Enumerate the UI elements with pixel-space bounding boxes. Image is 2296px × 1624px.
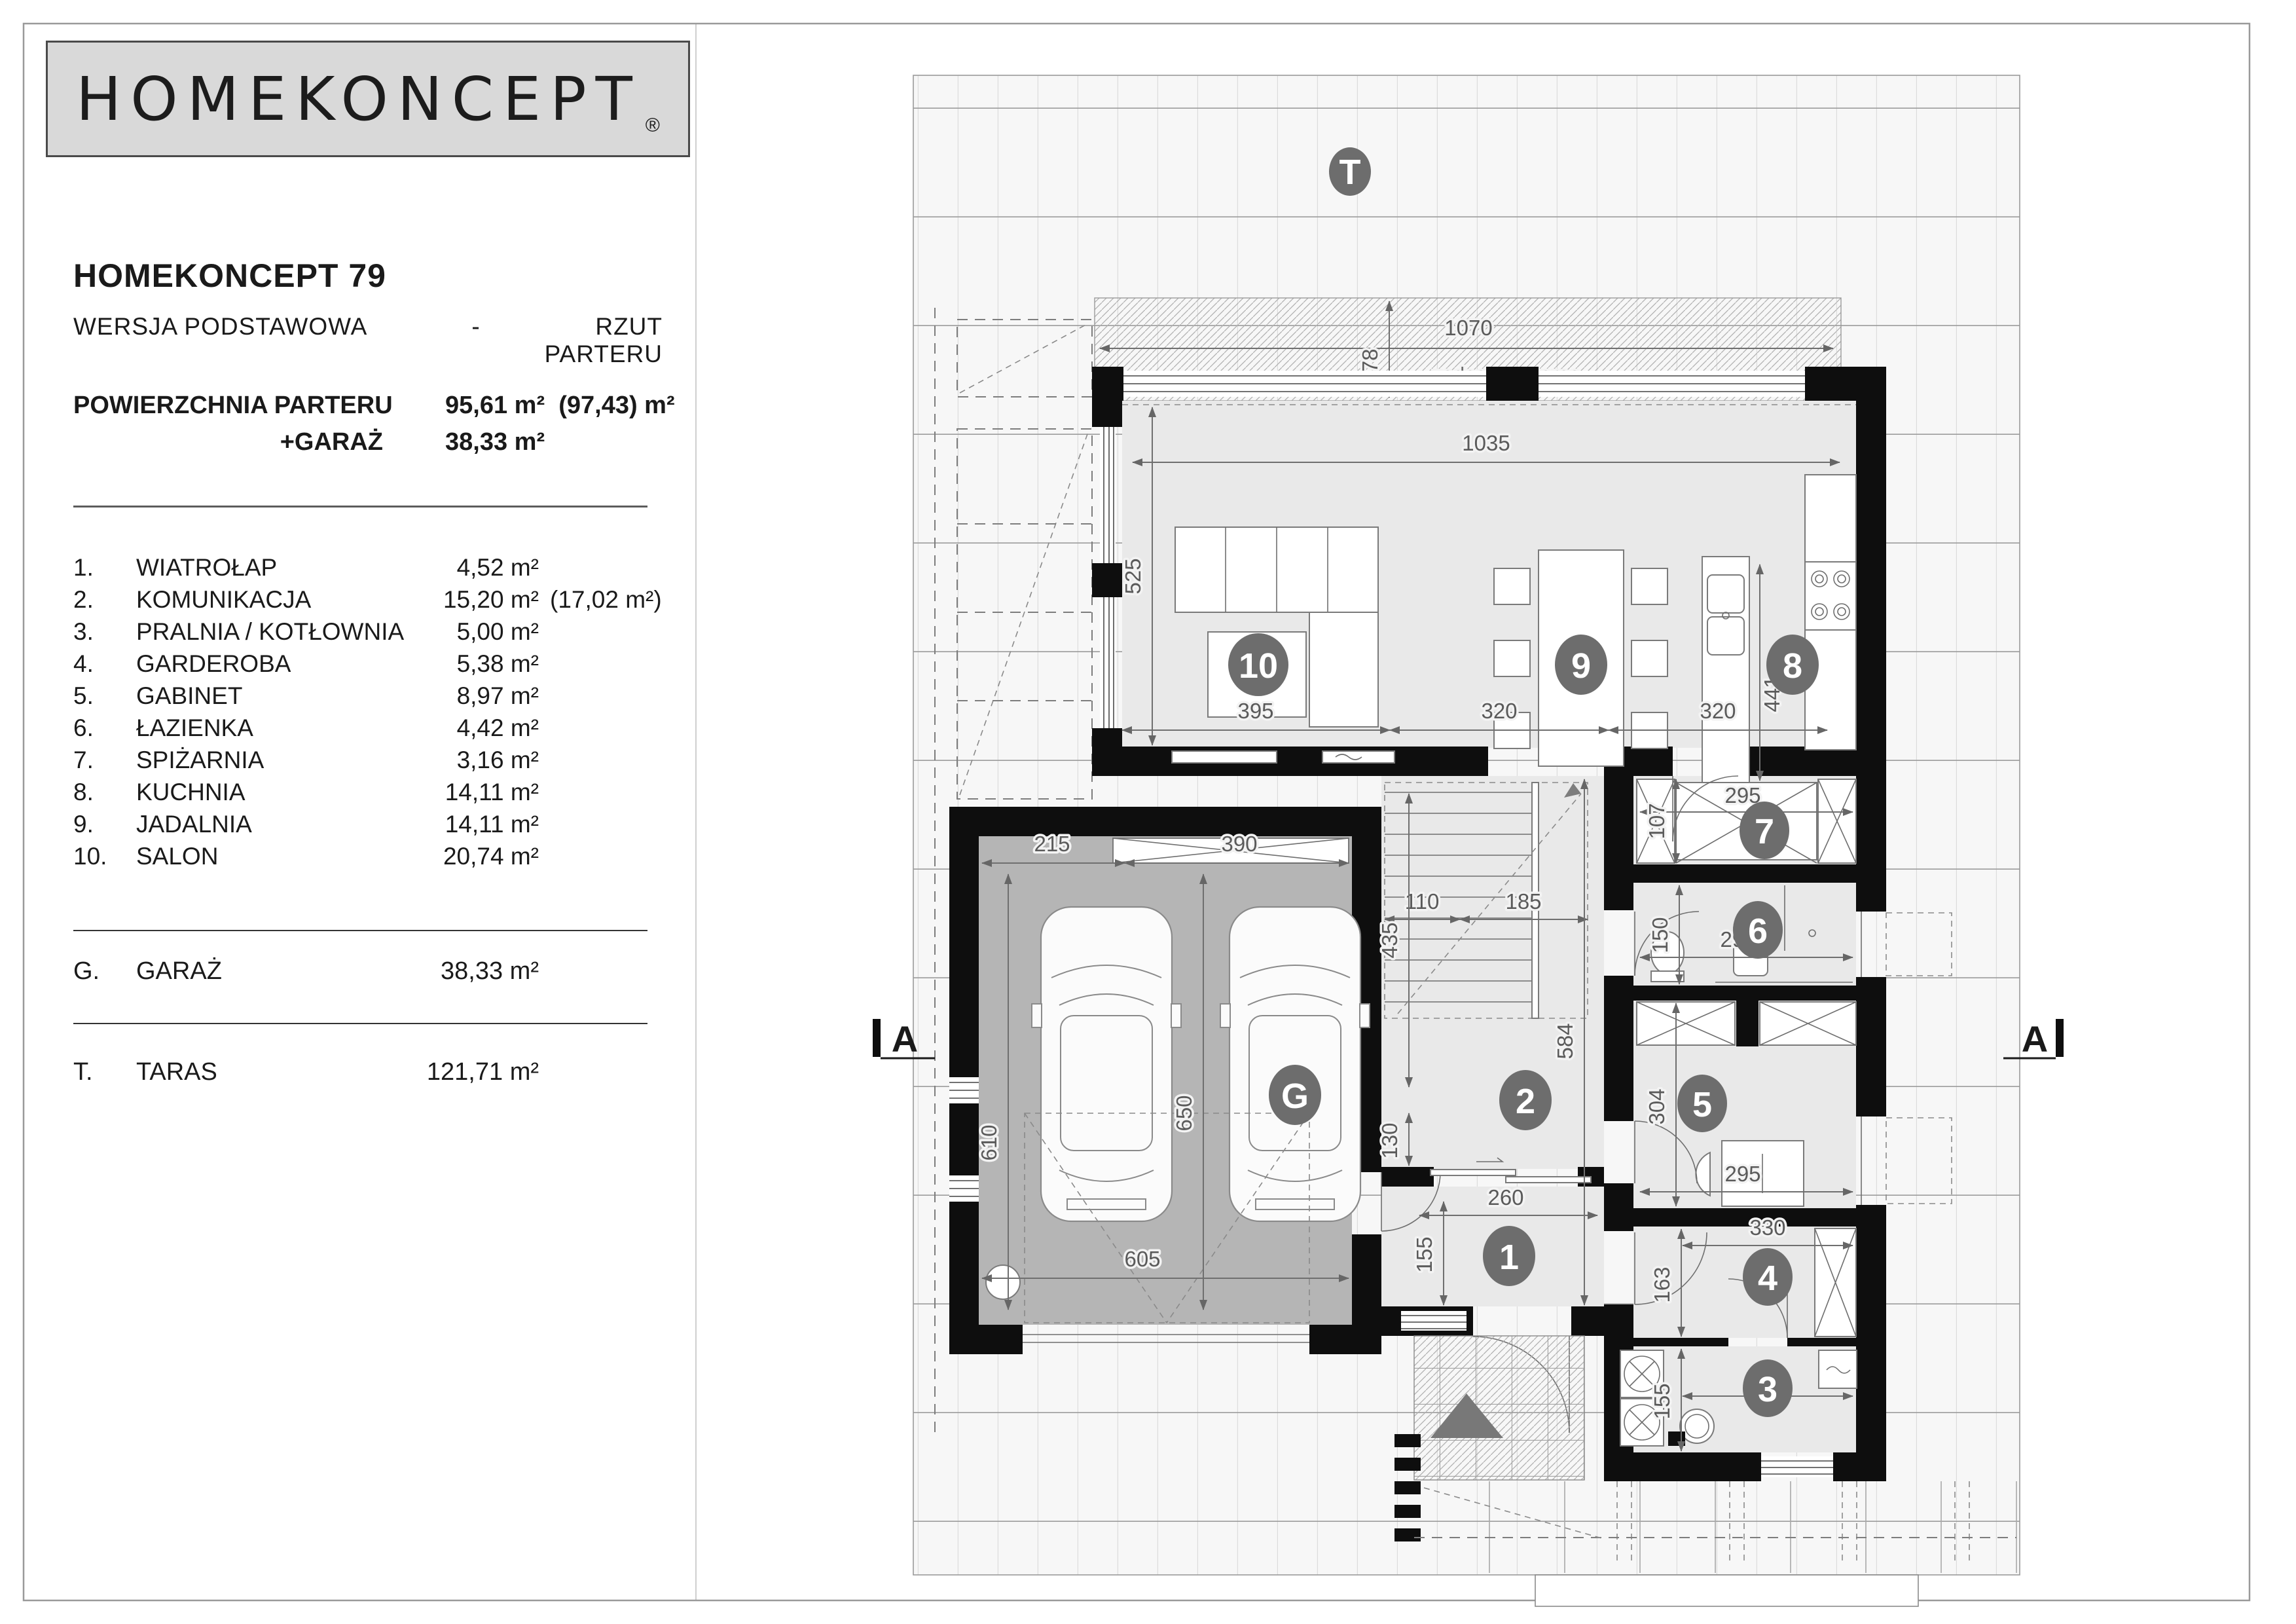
svg-text:2: 2 xyxy=(1516,1082,1535,1121)
svg-text:4: 4 xyxy=(1758,1259,1777,1298)
dimension-label: 650 xyxy=(1172,1095,1196,1131)
wardrobe-icon xyxy=(1815,1228,1856,1337)
dimension-label: 150 xyxy=(1648,917,1672,953)
dimension-label: 605 xyxy=(1124,1247,1160,1271)
garage-sink xyxy=(986,1265,1020,1299)
window-icon xyxy=(1401,1311,1467,1331)
dimension-label: 155 xyxy=(1650,1383,1674,1419)
dimension-label: 185 xyxy=(1505,889,1541,913)
garage-marker: G xyxy=(1269,1065,1321,1125)
dimension-label: 163 xyxy=(1650,1266,1674,1302)
chair xyxy=(1494,640,1530,676)
svg-text:6: 6 xyxy=(1748,912,1768,951)
room-marker: 4 xyxy=(1743,1248,1793,1306)
window-icon xyxy=(1123,371,1486,397)
svg-text:T: T xyxy=(1339,153,1361,192)
window-icon xyxy=(1100,427,1116,563)
svg-text:A: A xyxy=(892,1018,918,1060)
window-icon xyxy=(1100,597,1116,728)
sheet: HOMEKONCEPT ® HOMEKONCEPT 79 WERSJA PODS… xyxy=(0,0,2296,1624)
dimension-label: 610 xyxy=(977,1124,1001,1160)
room-marker: 9 xyxy=(1555,635,1607,695)
room-marker: 7 xyxy=(1740,802,1789,859)
svg-text:5: 5 xyxy=(1692,1085,1712,1124)
svg-text:9: 9 xyxy=(1571,646,1591,686)
dimension-label: 155 xyxy=(1412,1236,1436,1272)
floor-plan: 1070 178 zadaszony taras T xyxy=(0,0,2296,1624)
window-icon xyxy=(1539,371,1805,397)
wardrobe-icon xyxy=(1637,1002,1735,1045)
dimension-label: 1035 xyxy=(1462,431,1510,455)
chair xyxy=(1631,640,1667,676)
room-marker: 8 xyxy=(1766,635,1819,695)
wardrobe-icon xyxy=(1760,1002,1856,1045)
dimension-label: 435 xyxy=(1377,922,1402,958)
sink-basin xyxy=(1707,617,1744,655)
dimension-label: 330 xyxy=(1749,1215,1785,1240)
hall-area xyxy=(1381,776,1604,1169)
dimension-label: 390 xyxy=(1221,832,1257,856)
window-icon xyxy=(1761,1456,1833,1477)
dimension-label: 260 xyxy=(1487,1185,1523,1209)
room-marker: 2 xyxy=(1499,1070,1552,1130)
dimension-label: 215 xyxy=(1034,832,1070,856)
terrace-marker: T xyxy=(1329,147,1371,196)
dimension-label: 295 xyxy=(1724,1162,1760,1186)
dimension-label: 107 xyxy=(1645,803,1669,839)
dimension-label: 584 xyxy=(1553,1023,1577,1059)
window-icon xyxy=(949,1077,979,1103)
svg-text:10: 10 xyxy=(1239,646,1278,686)
dimension-label: 320 xyxy=(1481,699,1517,723)
dimension-label: 320 xyxy=(1700,699,1736,723)
dimension-label: 130 xyxy=(1377,1122,1402,1158)
svg-text:3: 3 xyxy=(1758,1370,1777,1409)
dimension-label: 110 xyxy=(1405,889,1440,913)
dimension-label: 304 xyxy=(1645,1088,1669,1124)
hob-icon xyxy=(1805,562,1856,630)
room-marker: 3 xyxy=(1743,1359,1793,1417)
boiler-icon xyxy=(1819,1350,1857,1388)
chair xyxy=(1494,568,1530,604)
dimension-label: 1070 xyxy=(1444,316,1492,340)
room-marker: 6 xyxy=(1733,901,1783,959)
room-marker: 1 xyxy=(1483,1226,1535,1286)
wardrobe-icon xyxy=(1818,779,1856,863)
dimension-label: 525 xyxy=(1121,558,1145,594)
chair xyxy=(1631,568,1667,604)
sink-basin xyxy=(1707,575,1744,613)
sofa-chaise xyxy=(1309,612,1378,727)
svg-text:G: G xyxy=(1281,1077,1309,1116)
dimension-label: 395 xyxy=(1237,699,1273,723)
room-marker: 10 xyxy=(1228,633,1288,696)
shaft xyxy=(1668,1431,1685,1446)
window-icon xyxy=(949,1175,979,1202)
room-marker: 5 xyxy=(1677,1075,1727,1132)
svg-text:A: A xyxy=(2022,1018,2048,1060)
svg-text:1: 1 xyxy=(1499,1238,1519,1277)
svg-text:8: 8 xyxy=(1783,646,1802,686)
svg-text:7: 7 xyxy=(1755,812,1774,851)
